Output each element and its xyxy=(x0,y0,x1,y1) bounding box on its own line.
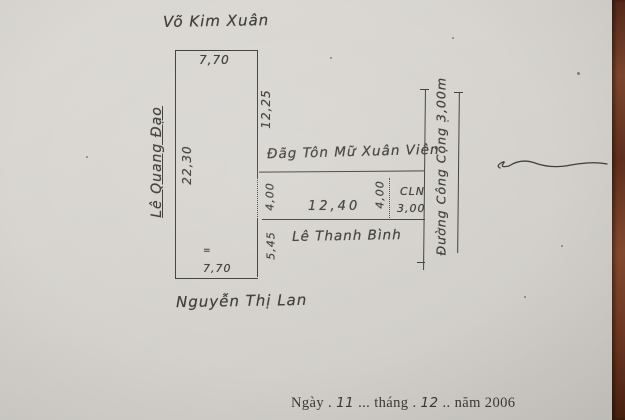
street-label-inner: Lê Thanh Bình xyxy=(292,227,402,245)
dim-top-width: 7,70 xyxy=(199,53,230,67)
road-left-line xyxy=(423,90,426,270)
date-middle: ... tháng . xyxy=(358,395,416,411)
date-line: Ngày . 11 ... tháng . 12 .. năm 2006 xyxy=(291,395,515,412)
cln-divider-dotted xyxy=(389,178,390,218)
dim-left-length: 22,30 xyxy=(180,144,194,186)
scan-speck xyxy=(330,57,332,59)
street-label-left: Lê Quang Đạo xyxy=(149,103,165,221)
handwritten-squiggle xyxy=(492,146,610,178)
road-right-line xyxy=(457,93,460,253)
scan-speck xyxy=(577,72,580,75)
street-label-top: Võ Kim Xuân xyxy=(163,11,270,31)
scan-speck xyxy=(524,296,526,298)
strip-upper-line xyxy=(259,170,425,172)
scan-speck xyxy=(86,156,88,158)
road-left-line-bottom-tick xyxy=(417,262,425,263)
street-label-bottom: Nguyễn Thị Lan xyxy=(176,291,308,311)
plot-right-edge-dotted-gap xyxy=(257,177,258,219)
scanned-land-sketch: Võ Kim Xuân Lê Quang Đạo 7,70 22,30 12,2… xyxy=(0,0,625,420)
date-prefix: Ngày . xyxy=(291,395,332,411)
dim-strip-right-gap: 4,00 xyxy=(374,177,387,213)
plot-right-edge-upper xyxy=(257,50,258,177)
road-left-line-top-tick xyxy=(420,89,429,90)
dim-right-gap: 4,00 xyxy=(264,179,277,215)
scan-speck xyxy=(452,37,454,39)
strip-lower-line xyxy=(262,219,425,220)
date-suffix: .. năm 2006 xyxy=(443,395,516,411)
neighbor-label: Đãg Tôn Mữ Xuân Viên xyxy=(267,142,440,163)
dim-strip-length: 12,40 xyxy=(308,199,360,214)
scan-speck xyxy=(447,120,449,122)
road-right-line-top-tick xyxy=(454,92,463,93)
scan-speck xyxy=(561,245,563,247)
cln-label: CLN xyxy=(400,185,425,198)
dim-cln-width: 3,00 xyxy=(397,202,426,215)
small-equals-mark: = xyxy=(203,246,212,256)
plot-right-edge-lower xyxy=(257,219,258,277)
date-day-handwritten: 11 xyxy=(336,395,354,411)
table-edge xyxy=(612,0,625,420)
date-month-handwritten: 12 xyxy=(421,395,439,411)
dim-right-upper: 12,25 xyxy=(259,88,273,130)
dim-right-lower: 5,45 xyxy=(265,228,278,264)
dim-bottom-width: 7,70 xyxy=(203,262,232,275)
